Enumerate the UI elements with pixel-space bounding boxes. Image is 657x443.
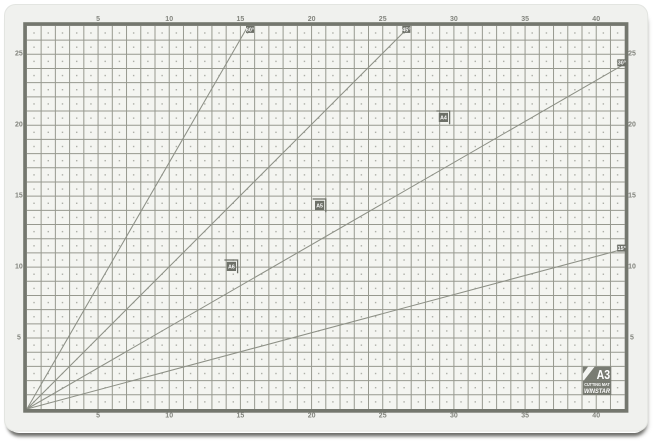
svg-text:5: 5 [630, 335, 634, 342]
svg-text:20: 20 [308, 413, 316, 420]
svg-text:CUTTING MAT: CUTTING MAT [584, 382, 610, 387]
svg-text:25: 25 [379, 413, 387, 420]
svg-text:WINSTAR: WINSTAR [584, 388, 610, 395]
svg-text:5: 5 [96, 413, 100, 420]
svg-text:15: 15 [628, 193, 636, 200]
svg-text:20: 20 [628, 122, 636, 129]
svg-text:45°: 45° [402, 27, 410, 33]
svg-text:30°: 30° [618, 61, 626, 67]
svg-text:25: 25 [15, 51, 23, 58]
svg-text:20: 20 [15, 122, 23, 129]
svg-text:15: 15 [237, 16, 245, 23]
svg-text:5: 5 [96, 16, 100, 23]
svg-text:15: 15 [237, 413, 245, 420]
svg-text:15: 15 [15, 193, 23, 200]
svg-text:35: 35 [521, 413, 529, 420]
svg-text:25: 25 [379, 16, 387, 23]
svg-text:10: 10 [165, 413, 173, 420]
svg-text:20: 20 [308, 16, 316, 23]
svg-text:10: 10 [628, 264, 636, 271]
svg-text:10: 10 [165, 16, 173, 23]
svg-text:A6: A6 [228, 265, 235, 271]
svg-text:25: 25 [628, 51, 636, 58]
svg-text:30: 30 [450, 413, 458, 420]
svg-text:40: 40 [592, 413, 600, 420]
svg-text:A5: A5 [316, 204, 323, 210]
svg-text:40: 40 [592, 16, 600, 23]
svg-text:35: 35 [521, 16, 529, 23]
svg-text:A3: A3 [597, 368, 611, 382]
svg-text:30: 30 [450, 16, 458, 23]
svg-text:5: 5 [17, 335, 21, 342]
svg-text:10: 10 [15, 264, 23, 271]
svg-text:15°: 15° [618, 246, 626, 252]
svg-text:A4: A4 [440, 116, 447, 122]
svg-text:60°: 60° [246, 27, 254, 33]
